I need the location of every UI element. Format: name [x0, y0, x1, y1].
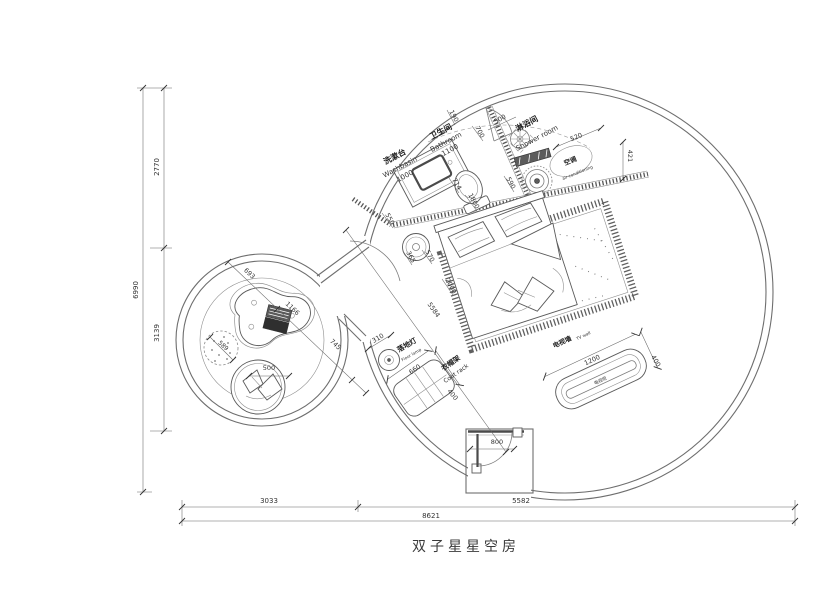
dimension-label: 550: [383, 212, 396, 227]
dimension-label: 3033: [260, 497, 278, 505]
room-label: TV wall: [575, 330, 592, 341]
dimension-label: 500: [263, 364, 275, 372]
dimension-label: 8621: [422, 512, 440, 520]
dimension-label: 700: [473, 125, 486, 140]
dimension-label: 421: [626, 150, 634, 162]
floor-plan-svg: 洗漱台Washbasin1000卫生间Bathroom1100淋浴间Shower…: [0, 0, 837, 592]
bathroom-door-leaf: [486, 108, 494, 141]
dimension-label: 5584: [426, 301, 442, 319]
dimension-label: 500: [493, 113, 508, 126]
dimension-label: 400: [445, 387, 459, 402]
room-label: 空调: [562, 154, 578, 167]
dimension-label: 400: [649, 354, 662, 369]
room-label: 淋浴间: [514, 113, 540, 133]
dimension-label: 570: [423, 249, 436, 264]
room-label: 电视墙: [551, 333, 573, 350]
dimension-label: 2770: [153, 158, 161, 176]
blanket-basket: [231, 360, 292, 414]
dimension-label: 590: [504, 176, 517, 191]
drawing-title: 双子星星空房: [412, 539, 520, 555]
dimension-label: 5582: [512, 497, 530, 505]
ceiling-fan: [522, 166, 552, 196]
dimension-label: 800: [491, 438, 503, 446]
dimension-label: 520: [569, 131, 584, 143]
floor-plan-page: 洗漱台Washbasin1000卫生间Bathroom1100淋浴间Shower…: [0, 0, 837, 592]
dimension-label: 310: [371, 332, 386, 345]
door-post: [513, 428, 522, 437]
kidney-desk: [223, 268, 321, 354]
dimension-label: 6990: [132, 281, 140, 299]
dimension-label: 3139: [153, 324, 161, 342]
